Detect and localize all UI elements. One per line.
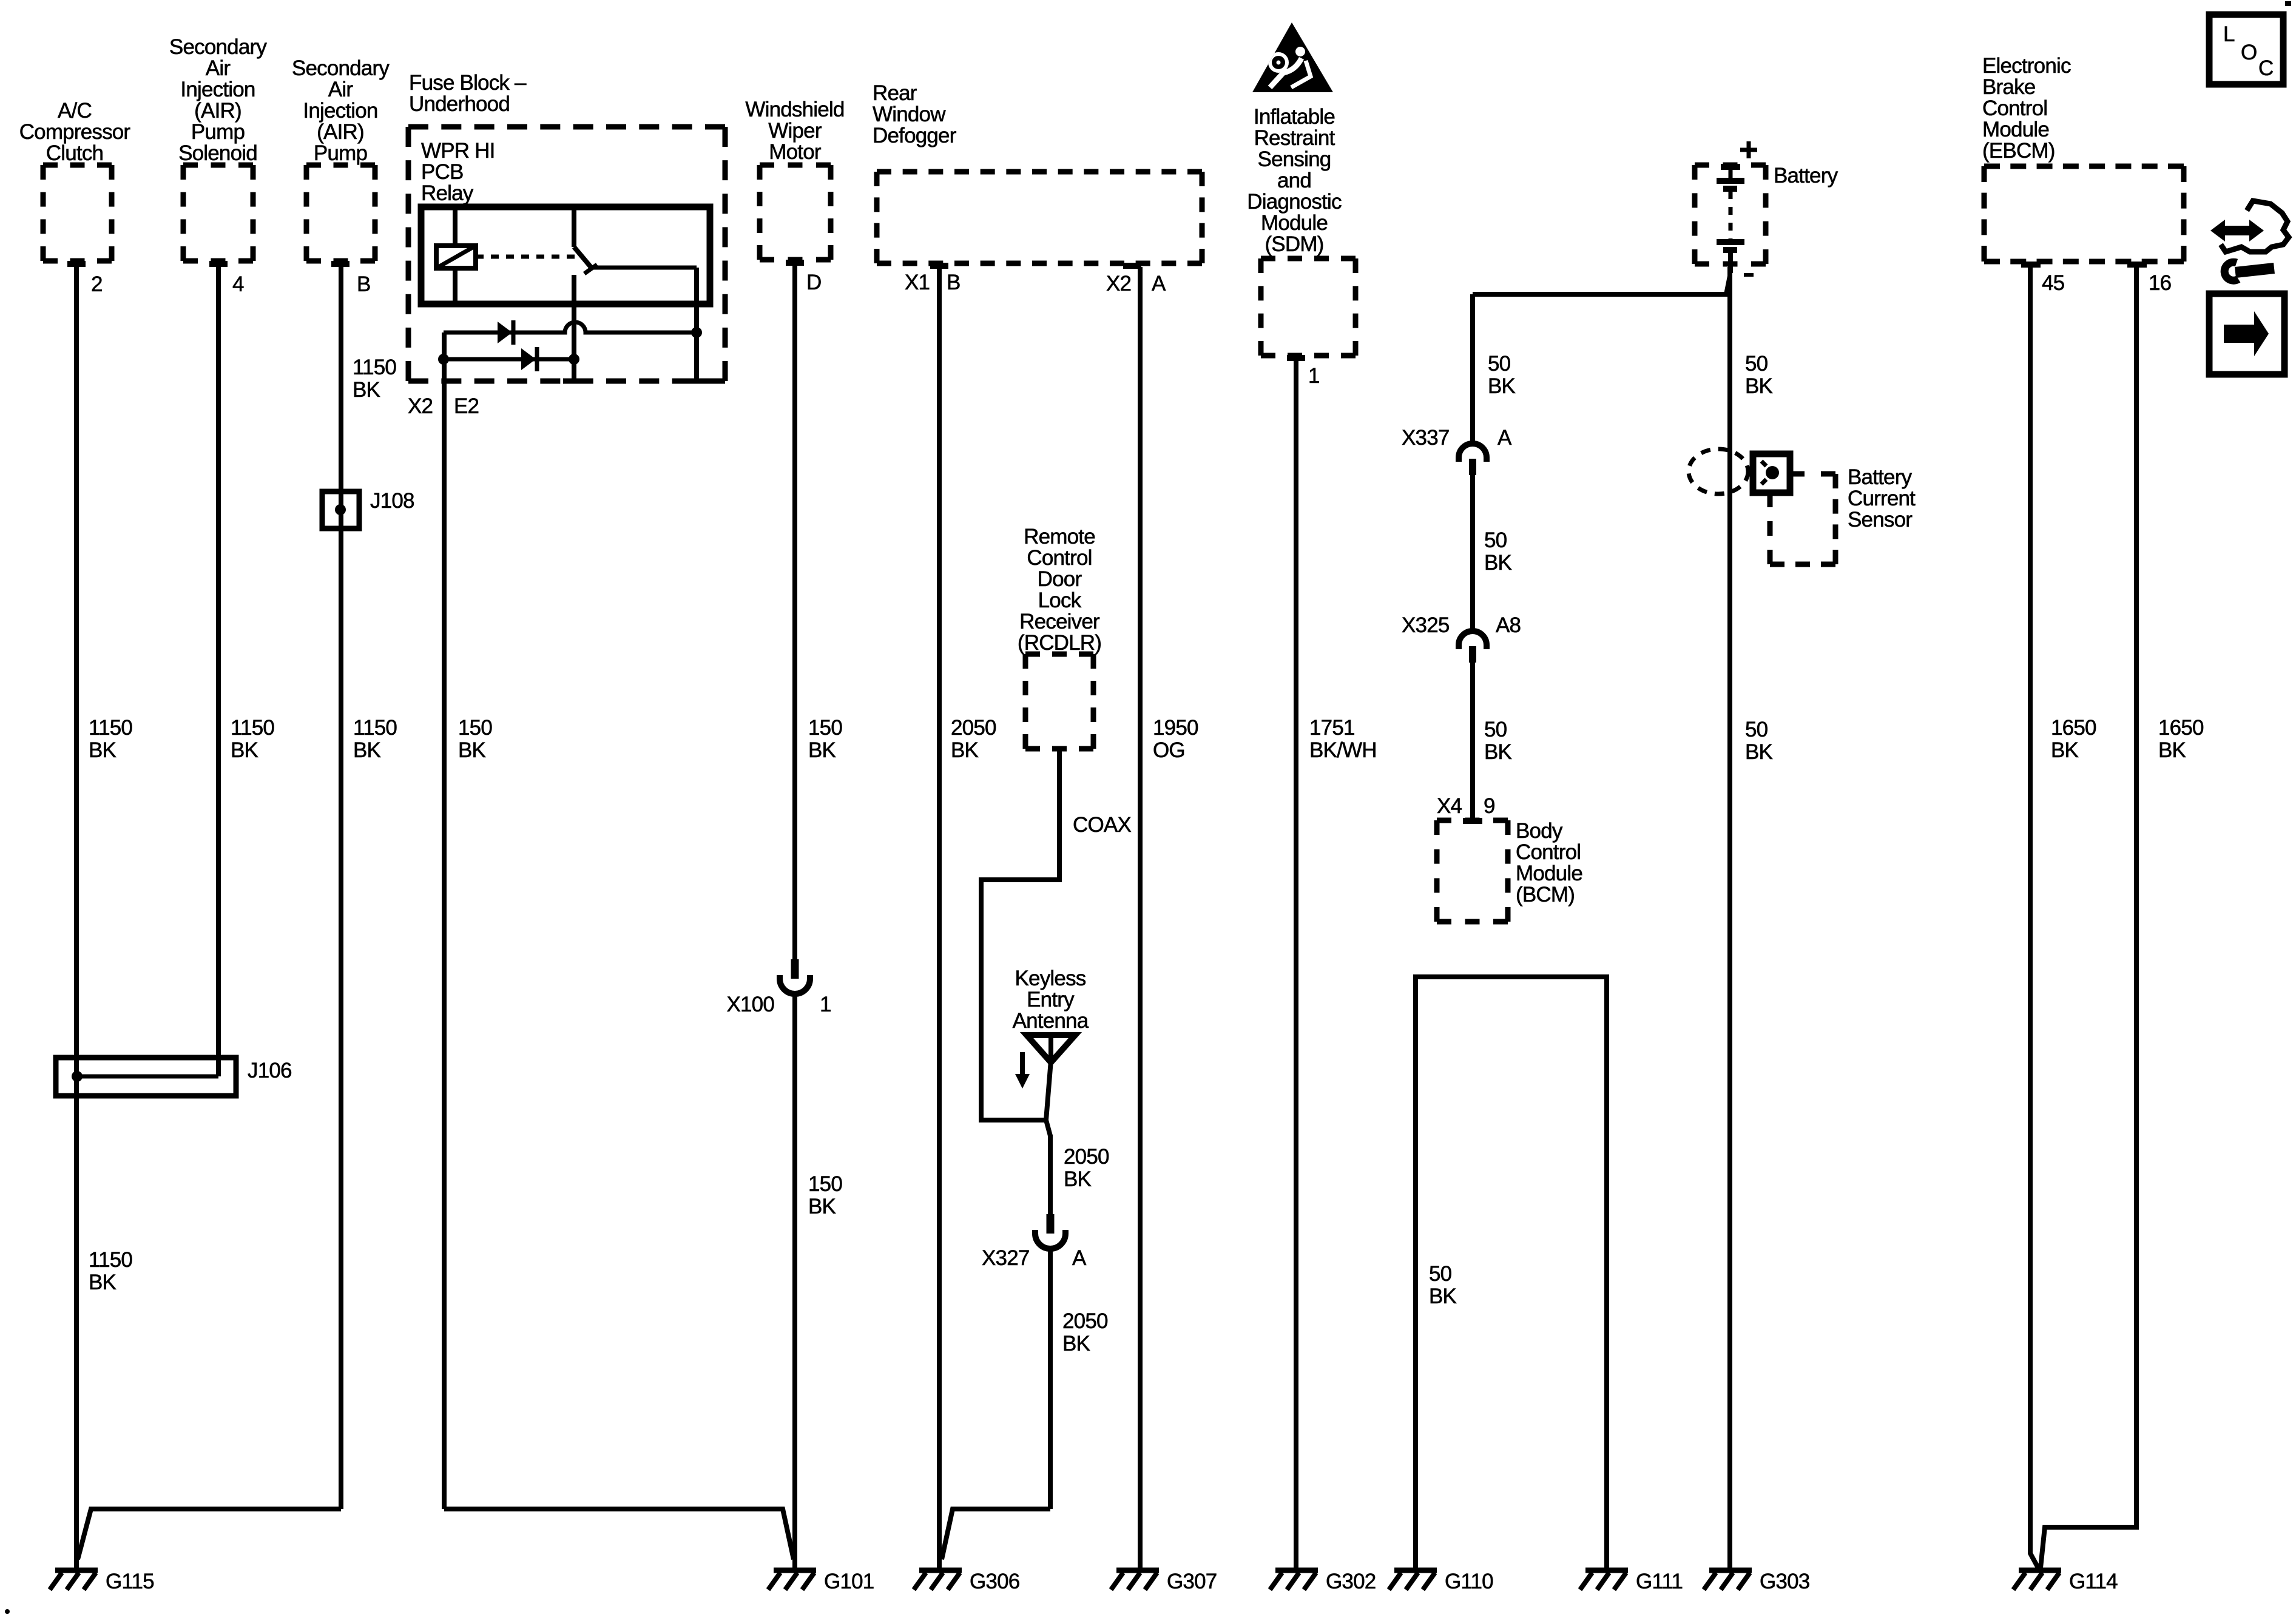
svg-text:BK: BK: [1745, 740, 1773, 764]
svg-text:1650: 1650: [2158, 716, 2204, 740]
svg-text:Sensor: Sensor: [1848, 508, 1913, 532]
svg-text:50: 50: [1484, 528, 1507, 552]
svg-text:O: O: [2241, 41, 2257, 64]
svg-text:BK: BK: [808, 738, 836, 762]
svg-text:50: 50: [1745, 352, 1768, 376]
svg-text:1150: 1150: [89, 1248, 132, 1272]
svg-text:Solenoid: Solenoid: [178, 141, 257, 165]
svg-text:50: 50: [1484, 718, 1507, 741]
svg-text:Rear: Rear: [873, 81, 917, 105]
svg-text:1650: 1650: [2051, 716, 2096, 740]
svg-text:BK/WH: BK/WH: [1309, 738, 1377, 762]
svg-text:Defogger: Defogger: [873, 124, 957, 147]
svg-text:G114: G114: [2069, 1570, 2118, 1593]
svg-text:G111: G111: [1636, 1570, 1683, 1593]
svg-text:OG: OG: [1153, 738, 1185, 762]
svg-text:A: A: [1072, 1246, 1087, 1270]
svg-text:BK: BK: [89, 738, 116, 762]
svg-text:45: 45: [2042, 271, 2064, 295]
svg-text:16: 16: [2149, 271, 2171, 295]
svg-text:Entry: Entry: [1027, 988, 1075, 1011]
svg-text:Injection: Injection: [180, 78, 255, 101]
svg-text:50: 50: [1429, 1262, 1452, 1286]
svg-text:X337: X337: [1402, 426, 1450, 450]
svg-text:Underhood: Underhood: [409, 92, 510, 116]
svg-text:Keyless: Keyless: [1015, 967, 1086, 990]
svg-text:PCB: PCB: [421, 160, 464, 184]
svg-text:Wiper: Wiper: [768, 119, 822, 143]
svg-text:Inflatable: Inflatable: [1254, 105, 1335, 129]
svg-text:BK: BK: [2051, 738, 2079, 762]
svg-text:Secondary: Secondary: [169, 35, 267, 59]
svg-text:9: 9: [1484, 794, 1495, 818]
svg-text:1751: 1751: [1309, 716, 1355, 740]
svg-text:Body: Body: [1516, 819, 1563, 843]
svg-text:X325: X325: [1402, 613, 1450, 637]
svg-text:1150: 1150: [89, 716, 132, 740]
svg-text:Control: Control: [1027, 546, 1092, 570]
svg-text:L: L: [2223, 22, 2235, 46]
svg-text:E2: E2: [454, 394, 479, 418]
svg-text:Injection: Injection: [303, 99, 377, 123]
svg-text:BK: BK: [1062, 1332, 1090, 1355]
svg-text:1150: 1150: [353, 356, 396, 379]
svg-text:Module: Module: [1982, 118, 2049, 141]
svg-text:G115: G115: [106, 1570, 154, 1593]
svg-text:Motor: Motor: [769, 140, 822, 164]
svg-text:C: C: [2258, 56, 2273, 80]
svg-text:Electronic: Electronic: [1982, 54, 2071, 78]
svg-text:150: 150: [808, 716, 842, 740]
svg-text:BK: BK: [353, 738, 381, 762]
svg-text:Fuse Block –: Fuse Block –: [409, 71, 527, 95]
svg-text:Clutch: Clutch: [46, 141, 103, 165]
svg-text:J106: J106: [248, 1059, 292, 1082]
svg-text:Receiver: Receiver: [1019, 610, 1100, 633]
svg-text:G302: G302: [1326, 1570, 1376, 1593]
svg-text:BK: BK: [353, 378, 380, 402]
svg-text:BK: BK: [2158, 738, 2186, 762]
svg-text:(BCM): (BCM): [1516, 883, 1575, 906]
svg-text:(RCDLR): (RCDLR): [1018, 631, 1101, 655]
svg-text:Control: Control: [1516, 840, 1581, 864]
svg-text:B: B: [947, 271, 961, 294]
svg-text:and: and: [1277, 169, 1311, 192]
svg-text:Secondary: Secondary: [292, 56, 390, 80]
svg-text:B: B: [357, 272, 371, 296]
svg-text:X327: X327: [982, 1246, 1030, 1270]
svg-text:1950: 1950: [1153, 716, 1198, 740]
svg-text:Air: Air: [206, 56, 231, 80]
svg-text:Battery: Battery: [1848, 465, 1913, 489]
svg-text:Compressor: Compressor: [19, 120, 131, 144]
svg-text:BK: BK: [1488, 374, 1516, 398]
svg-text:BK: BK: [1064, 1167, 1092, 1191]
svg-text:2050: 2050: [1062, 1309, 1108, 1333]
svg-text:Remote: Remote: [1024, 525, 1095, 549]
svg-text:BK: BK: [1484, 740, 1512, 764]
svg-text:(AIR): (AIR): [317, 120, 364, 144]
svg-text:G306: G306: [970, 1570, 1019, 1593]
svg-text:Pump: Pump: [191, 120, 245, 144]
svg-text:Restraint: Restraint: [1254, 126, 1335, 150]
svg-text:1150: 1150: [353, 716, 397, 740]
svg-text:Module: Module: [1516, 862, 1582, 885]
svg-text:Battery: Battery: [1774, 164, 1838, 187]
svg-text:BK: BK: [89, 1271, 116, 1294]
svg-text:Door: Door: [1038, 567, 1082, 591]
svg-text:BK: BK: [1429, 1284, 1457, 1308]
svg-text:1150: 1150: [231, 716, 274, 740]
svg-text:Relay: Relay: [421, 181, 474, 205]
svg-text:X2: X2: [408, 394, 433, 418]
svg-text:D: D: [806, 271, 821, 294]
svg-text:COAX: COAX: [1073, 813, 1131, 837]
svg-text:Module: Module: [1261, 211, 1328, 235]
svg-text:Brake: Brake: [1982, 75, 2035, 99]
svg-text:Diagnostic: Diagnostic: [1247, 190, 1342, 214]
svg-text:50: 50: [1488, 352, 1511, 376]
svg-text:BK: BK: [1484, 551, 1512, 575]
svg-text:2050: 2050: [951, 716, 996, 740]
svg-text:G307: G307: [1167, 1570, 1217, 1593]
svg-text:Window: Window: [873, 103, 946, 126]
svg-text:X4: X4: [1437, 794, 1462, 818]
svg-text:A: A: [1497, 426, 1512, 450]
svg-text:150: 150: [458, 716, 492, 740]
svg-text:150: 150: [808, 1172, 842, 1196]
svg-text:X100: X100: [726, 993, 774, 1016]
svg-text:Current: Current: [1848, 487, 1916, 510]
svg-text:Lock: Lock: [1038, 589, 1082, 612]
svg-text:1: 1: [820, 993, 831, 1016]
svg-text:4: 4: [232, 272, 244, 296]
svg-text:Control: Control: [1982, 96, 2047, 120]
svg-text:(SDM): (SDM): [1264, 232, 1323, 256]
svg-text:Air: Air: [328, 78, 354, 101]
svg-text:G303: G303: [1760, 1570, 1809, 1593]
svg-text:(EBCM): (EBCM): [1982, 139, 2055, 163]
svg-text:BK: BK: [458, 738, 486, 762]
svg-text:A/C: A/C: [58, 99, 92, 123]
svg-text:WPR HI: WPR HI: [421, 139, 495, 163]
svg-text:J108: J108: [370, 489, 414, 513]
svg-text:Pump: Pump: [314, 141, 367, 165]
svg-text:BK: BK: [951, 738, 979, 762]
svg-text:X2: X2: [1106, 272, 1131, 295]
svg-text:X1: X1: [905, 271, 930, 294]
svg-text:50: 50: [1745, 718, 1768, 741]
svg-text:BK: BK: [1745, 374, 1773, 398]
svg-text:2050: 2050: [1064, 1145, 1109, 1169]
svg-text:2: 2: [91, 272, 103, 296]
svg-text:Windshield: Windshield: [745, 98, 844, 121]
svg-text:A8: A8: [1496, 613, 1521, 637]
svg-text:G110: G110: [1445, 1570, 1493, 1593]
svg-text:Antenna: Antenna: [1013, 1009, 1089, 1033]
svg-text:Sensing: Sensing: [1258, 147, 1331, 171]
svg-text:1: 1: [1308, 364, 1320, 388]
svg-text:A: A: [1152, 272, 1166, 295]
svg-text:G101: G101: [824, 1570, 874, 1593]
svg-text:(AIR): (AIR): [194, 99, 241, 123]
svg-text:BK: BK: [231, 738, 258, 762]
svg-text:BK: BK: [808, 1195, 836, 1218]
